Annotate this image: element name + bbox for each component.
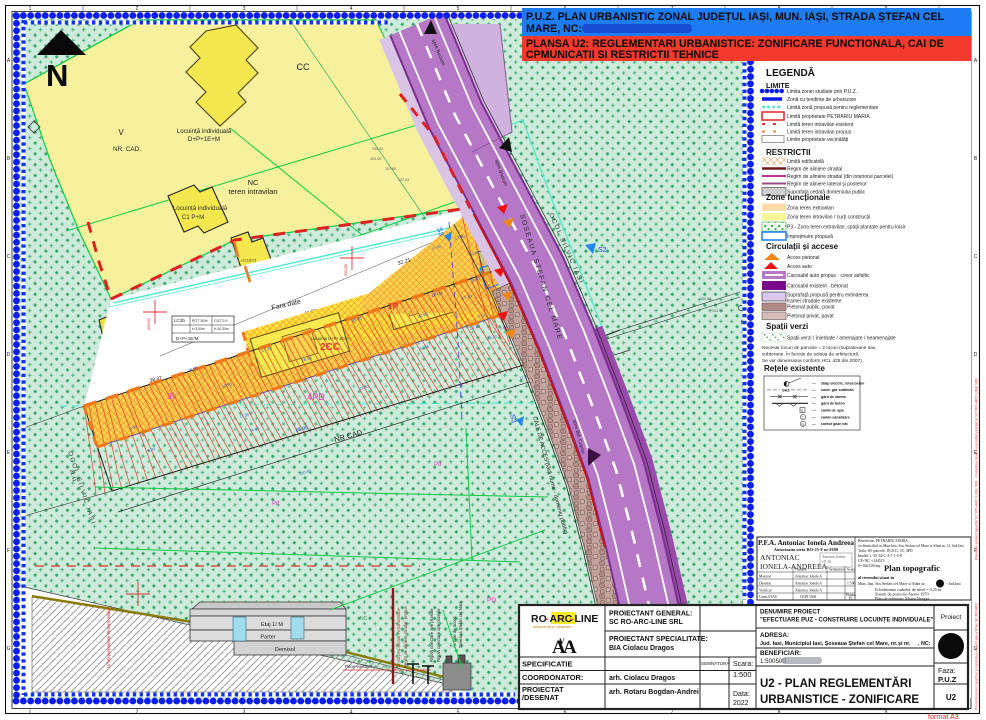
svg-text:gard de beton: gard de beton: [821, 402, 845, 406]
svg-text:Proiect: Proiect: [941, 614, 962, 621]
svg-text:1:500: 1:500: [847, 582, 856, 586]
svg-text:Prezenta proiect apartine prop: Prezenta proiect apartine proprietatea i…: [975, 602, 979, 710]
svg-text:cond. gaz subteran: cond. gaz subteran: [821, 388, 854, 392]
svg-text:Numele: Numele: [795, 568, 807, 572]
svg-text:, NC:: , NC:: [918, 641, 931, 647]
svg-text:teren intravilan: teren intravilan: [228, 187, 277, 196]
svg-text:Antoniac Ionela A: Antoniac Ionela A: [795, 575, 822, 579]
svg-text:6: 6: [564, 710, 567, 716]
svg-text:Masurat: Masurat: [759, 575, 771, 579]
svg-text:—: —: [812, 402, 816, 406]
svg-text:Rețele existente: Rețele existente: [764, 364, 825, 373]
svg-text:arhitectură și urbanism: arhitectură și urbanism: [533, 625, 571, 629]
svg-text:A: A: [563, 637, 577, 658]
svg-text:Circulații și accese: Circulații și accese: [766, 242, 839, 251]
svg-text:Necesar locuri de parcare = 2: Necesar locuri de parcare = 2 locuri (su…: [762, 345, 876, 351]
svg-text:Împrejmuire propusă: Împrejmuire propusă: [786, 233, 833, 240]
svg-text:Semnatura: Semnatura: [829, 568, 845, 572]
svg-text:Demisol: Demisol: [275, 647, 295, 653]
svg-text:G: G: [7, 646, 11, 652]
svg-text:Locuință individuală: Locuință individuală: [177, 128, 232, 135]
svg-text:arh. Rotaru Bogdan-Andrei: arh. Rotaru Bogdan-Andrei: [609, 689, 699, 696]
svg-text:N: N: [46, 58, 68, 93]
svg-text:GAZ: GAZ: [782, 389, 790, 393]
svg-text:—: —: [812, 395, 816, 399]
svg-text:2: 2: [136, 710, 139, 716]
svg-text:107.60: 107.60: [385, 167, 396, 171]
svg-text:—: —: [812, 388, 816, 392]
svg-text:Pietonal privat, pavat: Pietonal privat, pavat: [787, 314, 834, 320]
svg-text:7: 7: [671, 710, 674, 716]
svg-text:Zone funcționale: Zone funcționale: [766, 193, 831, 202]
svg-text:690150: 690150: [147, 318, 151, 330]
svg-text:al terenului situat in: al terenului situat in: [858, 575, 895, 580]
svg-text:și nr.: și nr.: [898, 641, 911, 647]
svg-text:Etaj 1/ M: Etaj 1/ M: [261, 622, 283, 628]
svg-text:Rigolă colectare ape pluviale: Rigolă colectare ape pluviale: [429, 608, 434, 662]
svg-text:DENUMIRE PROIECT: DENUMIRE PROIECT: [760, 610, 821, 616]
svg-text:URBANISTICE - ZONIFICARE: URBANISTICE - ZONIFICARE: [760, 694, 919, 706]
svg-text:camin canalizare: camin canalizare: [821, 415, 850, 419]
svg-text:/DESENAT: /DESENAT: [522, 693, 559, 702]
svg-text:—: —: [812, 409, 816, 413]
svg-text:690200: 690200: [344, 264, 348, 276]
svg-text:COORDONATOR:: COORDONATOR:: [522, 673, 583, 682]
svg-text:Plansele proiect apartin SC RO: Plansele proiect apartin SC RO-ARC-LINE …: [975, 377, 979, 560]
svg-text:NC: NC: [360, 616, 368, 622]
svg-text:Limită zonă propusă pentru reg: Limită zonă propusă pentru reglementare: [787, 105, 879, 111]
svg-text:Limite proprietate vecinătăți: Limite proprietate vecinătăți: [787, 137, 848, 143]
svg-text:U2: U2: [946, 693, 957, 702]
svg-text:BENEFICIAR:: BENEFICIAR:: [760, 650, 801, 657]
svg-text:107.23: 107.23: [398, 178, 409, 182]
svg-text:—: —: [812, 422, 816, 426]
svg-text:CC: CC: [297, 62, 310, 72]
svg-text:P.U.Z: P.U.Z: [938, 675, 957, 684]
svg-text:SPECIFICATIE: SPECIFICATIE: [522, 660, 572, 669]
svg-text:D: D: [7, 352, 11, 358]
svg-text:Scara:: Scara:: [733, 661, 753, 668]
svg-text:"EFECTUARE PUZ - CONSTRUIRE LO: "EFECTUARE PUZ - CONSTRUIRE LOCUINȚE IND…: [760, 618, 934, 624]
svg-text:100.52: 100.52: [700, 297, 711, 301]
svg-text:-: -: [570, 613, 574, 625]
svg-text:Autorizatia seria RO-25-F nr 0: Autorizatia seria RO-25-F nr 0109: [774, 547, 839, 552]
svg-text:PD: PD: [487, 597, 496, 604]
svg-text:1:500: 1:500: [733, 670, 752, 679]
svg-text:Limită teren intravilan existe: Limită teren intravilan existent: [787, 122, 854, 128]
svg-text:Parter: Parter: [260, 635, 275, 641]
svg-text:format A3: format A3: [928, 712, 959, 720]
svg-text:Spații verzi / înierbate / ame: Spații verzi / înierbate / amenajate / n…: [787, 336, 896, 342]
svg-text:8: 8: [778, 710, 781, 716]
svg-text:V: V: [118, 128, 124, 137]
svg-text:CF+NC +144513: CF+NC +144513: [858, 559, 885, 563]
svg-text:Zona teren extravilan: Zona teren extravilan: [787, 206, 834, 212]
svg-text:D+P+1E+M: D+P+1E+M: [188, 136, 220, 143]
svg-text:Ax cale de acces: Ax cale de acces: [452, 616, 457, 648]
svg-text:Regim de aliniere stradal (din: Regim de aliniere stradal (din interioru…: [787, 174, 893, 180]
svg-text:Carosabil existent - betonat: Carosabil existent - betonat: [787, 284, 848, 290]
svg-text:Locuință individuală: Locuință individuală: [173, 205, 228, 212]
svg-text:LEGENDĂ: LEGENDĂ: [766, 66, 815, 79]
svg-text:Plan de referinta- Marea Neagr: Plan de referinta- Marea Neagra: [875, 596, 929, 601]
svg-text:V: V: [559, 637, 565, 646]
svg-text:2022: 2022: [733, 700, 749, 707]
svg-text:PROIECTANT SPECIALITATE:: PROIECTANT SPECIALITATE:: [609, 636, 708, 643]
svg-text:4: 4: [350, 710, 353, 716]
svg-text:P1: P1: [849, 597, 853, 601]
svg-text:S2: S2: [598, 247, 607, 254]
svg-text:Pietonal public, pavat: Pietonal public, pavat: [787, 305, 835, 311]
svg-text:1P: 1P: [388, 301, 399, 311]
svg-text:LC2b: LC2b: [174, 318, 185, 323]
svg-text:Contr.STAS: Contr.STAS: [759, 595, 777, 599]
svg-text:5: 5: [457, 710, 460, 716]
svg-text:P.F.A. Antoniac Ionela Andree: P.F.A. Antoniac Ionela Andreea: [758, 539, 854, 547]
svg-text:gard de sarma: gard de sarma: [821, 395, 847, 399]
svg-text:contor gaze nat: contor gaze nat: [821, 422, 848, 426]
svg-text:3: 3: [243, 710, 246, 716]
svg-text:CUT 0.9: CUT 0.9: [214, 319, 227, 323]
svg-text:C: C: [974, 254, 978, 260]
svg-text:Limita proprietate PetrariuMar: Limita proprietate PetrariuMaria+: [396, 606, 401, 668]
svg-text:CF-25: CF-25: [822, 560, 831, 564]
svg-text:POT 30%: POT 30%: [192, 319, 208, 323]
svg-text:9: 9: [885, 710, 888, 716]
svg-text:Pilon existent: Pilon existent: [345, 664, 373, 669]
svg-text:Antoniac Ionela A: Antoniac Ionela A: [795, 589, 822, 593]
svg-text:PROIECTANT GENERAL:: PROIECTANT GENERAL:: [609, 611, 692, 618]
svg-text:2: 2: [136, 6, 139, 12]
svg-text:Acces pietonal: Acces pietonal: [787, 255, 820, 261]
svg-text:stalp electric, retea beton: stalp electric, retea beton: [821, 381, 864, 385]
svg-text:Regim de aliniere stradal: Regim de aliniere stradal: [787, 167, 842, 173]
svg-text:Limită edificabilă: Limită edificabilă: [787, 159, 824, 165]
svg-text:RESTRICTII: RESTRICTII: [766, 148, 810, 157]
svg-text:—: —: [812, 381, 816, 385]
svg-text:Regim de aliniere lateral și p: Regim de aliniere lateral și posterior: [787, 182, 867, 188]
svg-text:Scara: Scara: [847, 568, 856, 572]
svg-text:1: 1: [29, 710, 32, 716]
svg-text:P.U.Z. PLAN URBANISTIC ZONAL: P.U.Z. PLAN URBANISTIC ZONAL JUDEȚUL IAȘ…: [526, 11, 945, 23]
svg-text:Zona teren intravilan / curți: Zona teren intravilan / curți construcți…: [787, 215, 870, 221]
svg-text:Rigolă colectare ape pluviale: Rigolă colectare ape pluviale: [436, 608, 441, 662]
svg-text:Plan topografic: Plan topografic: [884, 563, 940, 573]
svg-text:-: -: [545, 613, 549, 625]
svg-text:Pd: Pd: [434, 462, 441, 468]
svg-text:Limita zonei studiate prin P.U: Limita zonei studiate prin P.U.Z.: [787, 89, 857, 95]
svg-text:Jud. Iasi, Municipiul Iasi, Șo: Jud. Iasi, Municipiul Iasi, Șoseaua Ștef…: [760, 641, 898, 647]
svg-text:Pd: Pd: [272, 501, 279, 507]
svg-text:ADRESA:: ADRESA:: [760, 632, 789, 639]
svg-text:H 3.00m: H 3.00m: [192, 327, 205, 331]
svg-text:NC: NC: [248, 178, 259, 187]
svg-text:Carosabil auto propus - covor: Carosabil auto propus - covor asfaltic: [787, 273, 870, 279]
svg-text:D: D: [974, 352, 978, 358]
svg-text:C1 P+M: C1 P+M: [182, 214, 205, 221]
svg-text:Zonă cu tendințe de urbanizare: Zonă cu tendințe de urbanizare: [787, 97, 856, 103]
svg-text:Antoniac Ionela: Antoniac Ionela: [822, 555, 845, 559]
svg-text:Regim de aliniere stradal- pro: Regim de aliniere stradal- propus: [403, 606, 408, 668]
svg-text:NR. CAD.: NR. CAD.: [113, 146, 141, 153]
svg-text:103.18: 103.18: [712, 309, 723, 313]
svg-text:103.40: 103.40: [372, 147, 383, 151]
svg-text:2CC: 2CC: [320, 342, 340, 353]
svg-text:S: S: [801, 409, 803, 413]
svg-text:Șoseaua Ștefan cel Mare: Șoseaua Ștefan cel Mare: [458, 600, 463, 648]
svg-text:Spații verzi: Spații verzi: [766, 322, 808, 331]
svg-text:D+P+1E/M: D+P+1E/M: [176, 336, 199, 341]
svg-text:subterane. În funcție de soluț: subterane. În funcție de soluția de arhi…: [762, 351, 859, 358]
svg-text:P3 - Zona teren extravilan, sp: P3 - Zona teren extravilan, spații plant…: [787, 225, 906, 231]
svg-text:camin al. apa: camin al. apa: [821, 409, 845, 413]
svg-text:SEMNATURA: SEMNATURA: [701, 661, 730, 666]
svg-text:H 10.30m: H 10.30m: [214, 327, 229, 331]
svg-text:C: C: [7, 254, 11, 260]
svg-text:arh. Ciolacu Dragos: arh. Ciolacu Dragos: [609, 675, 675, 682]
svg-text:Acces auto: Acces auto: [787, 264, 812, 270]
svg-text:Data:: Data:: [733, 691, 750, 698]
svg-text:Verificat: Verificat: [759, 589, 772, 593]
svg-text:4: 4: [350, 6, 353, 12]
svg-text:U2 - PLAN REGLEMENTĂRI: U2 - PLAN REGLEMENTĂRI: [760, 677, 911, 690]
svg-text:—: —: [812, 415, 816, 419]
svg-text:103.40: 103.40: [370, 157, 381, 161]
svg-text:Locuința D+P+1E/M: Locuința D+P+1E/M: [311, 336, 349, 341]
svg-text:- Jud.Iasi: - Jud.Iasi: [946, 581, 962, 586]
svg-text:Desenat: Desenat: [759, 582, 771, 586]
svg-text:BIA Ciolacu Dragos: BIA Ciolacu Dragos: [609, 645, 674, 652]
svg-text:Limită teren intravilan propus: Limită teren intravilan propus: [787, 130, 852, 136]
svg-text:OCPI IASI: OCPI IASI: [800, 595, 817, 599]
svg-text:5: 5: [457, 6, 460, 12]
svg-text:3: 3: [243, 6, 246, 12]
svg-text:CPMUNICATII SI RESTRICTII TEHN: CPMUNICATII SI RESTRICTII TEHNICE: [526, 49, 719, 61]
svg-text:Antoniac Ionela A: Antoniac Ionela A: [795, 582, 822, 586]
svg-text:LINE: LINE: [575, 613, 599, 625]
svg-text:Imobil: t.-35-34-C-4-7-1-5-8: Imobil: t.-35-34-C-4-7-1-5-8: [858, 554, 902, 558]
svg-text:SC RO-ARC-LINE SRL: SC RO-ARC-LINE SRL: [609, 619, 684, 626]
svg-text:Limită proprietate PETRARIU MA: Limită proprietate PETRARIU MARIA: [787, 114, 870, 120]
svg-text:3V: 3V: [167, 392, 177, 401]
svg-text:Faza:: Faza:: [938, 668, 956, 675]
svg-text:4PD: 4PD: [307, 392, 325, 402]
svg-text:ANTONIAC: ANTONIAC: [760, 553, 800, 562]
svg-text:Limita proprietate Petrariu Ma: Limita proprietate Petrariu Maria: [106, 608, 111, 668]
svg-text:F: F: [7, 548, 10, 554]
svg-text:1: 1: [29, 6, 32, 12]
svg-text:IONELA-ANDREEA: IONELA-ANDREEA: [760, 562, 828, 571]
svg-text:MARE, NC:: MARE, NC:: [526, 23, 582, 35]
